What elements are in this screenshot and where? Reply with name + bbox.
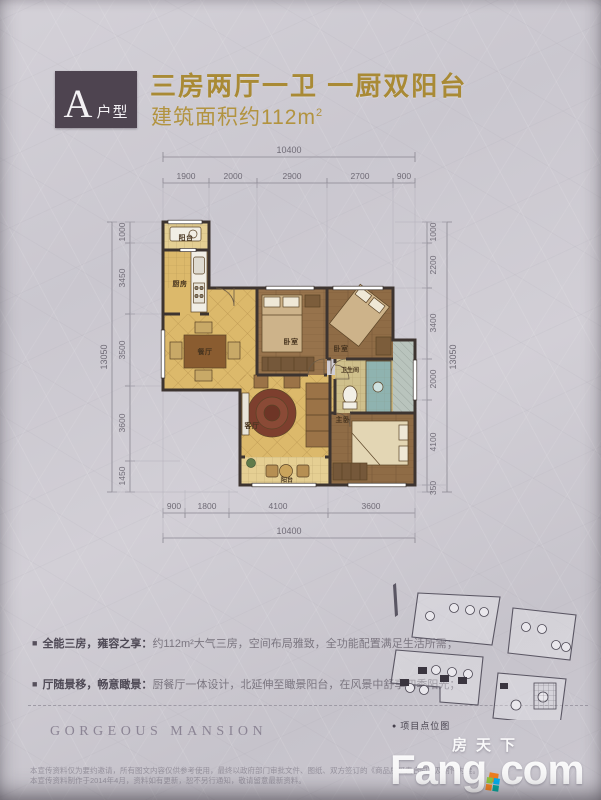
dim-top-1: 1900 [177, 171, 196, 181]
dim-left-1: 1000 [117, 222, 127, 241]
dim-left-5: 1450 [117, 466, 127, 485]
watermark-cn-text: 房天下 [452, 734, 524, 755]
dim-top-2: 2000 [224, 171, 243, 181]
room-label-kitchen: 厨房 [173, 279, 188, 288]
dim-right-1: 1000 [428, 222, 438, 241]
room-label-bedroom2: 卧室 [334, 344, 349, 353]
dim-bottom-4: 3600 [362, 501, 381, 511]
bullet-square-icon: ■ [32, 679, 37, 689]
dim-bottom-1: 900 [167, 501, 181, 511]
dim-right-6: 350 [428, 481, 438, 495]
dim-right-total: 13050 [448, 344, 458, 369]
disclaimer: 本宣传资料仅为要约邀请，所有图文内容仅供参考使用，最终以政府部门审批文件、图纸、… [30, 766, 595, 786]
dim-left-total: 13050 [99, 344, 109, 369]
unit-suffix: 户型 [96, 104, 128, 121]
unit-letter: A [64, 87, 93, 121]
dim-left-2: 3450 [117, 268, 127, 287]
dim-top-total: 10400 [276, 145, 301, 155]
dim-top-4: 2700 [351, 171, 370, 181]
dim-right-5: 4100 [428, 432, 438, 451]
disclaimer-line-1: 本宣传资料仅为要约邀请，所有图文内容仅供参考使用，最终以政府部门审批文件、图纸、… [30, 766, 595, 776]
room-label-balcony-top: 阳台 [179, 233, 194, 242]
dim-left-4: 3600 [117, 413, 127, 432]
flyer-page: A 户型 三房两厅一卫 一厨双阳台 建筑面积约112m2 [0, 0, 601, 800]
dim-bottom-total: 10400 [276, 526, 301, 536]
dim-bottom-2: 1800 [198, 501, 217, 511]
room-label-master: 主卧 [336, 415, 351, 424]
area-subtitle: 建筑面积约112m2 [151, 101, 323, 131]
floorplan-svg: 阳台 厨房 餐厅 卧室 卧室 客厅 卫生间 主卧 阳台 [0, 145, 601, 577]
siteplan-svg [388, 575, 596, 720]
area-sup: 2 [316, 107, 323, 119]
dim-right-2: 2200 [428, 255, 438, 274]
disclaimer-line-2: 本宣传资料制作于2014年4月，资料如有更新，恕不另行通知，敬请留意最新资料。 [30, 776, 595, 786]
room-label-dining: 餐厅 [197, 347, 213, 356]
room-label-bath: 卫生间 [341, 366, 359, 374]
feature-1-label: 全能三房，雍容之享： [42, 638, 152, 650]
dim-top-3: 2900 [283, 171, 302, 181]
room-label-bedroom1: 卧室 [284, 337, 299, 346]
north-arrow-icon [393, 583, 398, 617]
unit-type-badge: A 户型 [55, 71, 137, 128]
fang-watermark: 房天下 Fangcom [390, 734, 601, 796]
area-text: 建筑面积约112m [151, 106, 316, 129]
feature-2-label: 厅随景移，畅意瞰景： [42, 679, 152, 691]
room-label-balcony-bottom: 阳台 [281, 476, 293, 484]
bullet-square-icon: ■ [32, 638, 37, 648]
page-title: 三房两厅一卫 一厨双阳台 [150, 66, 580, 103]
dim-top-5: 900 [397, 171, 411, 181]
dim-left-3: 3500 [117, 340, 127, 359]
room-label-living: 客厅 [244, 421, 260, 430]
siteplan-caption: 项目点位图 [392, 719, 450, 732]
dim-right-4: 2000 [428, 369, 438, 388]
dim-bottom-3: 4100 [269, 501, 288, 511]
brand-wordmark: GORGEOUS MANSION [50, 724, 267, 740]
dim-right-3: 3400 [428, 313, 438, 332]
